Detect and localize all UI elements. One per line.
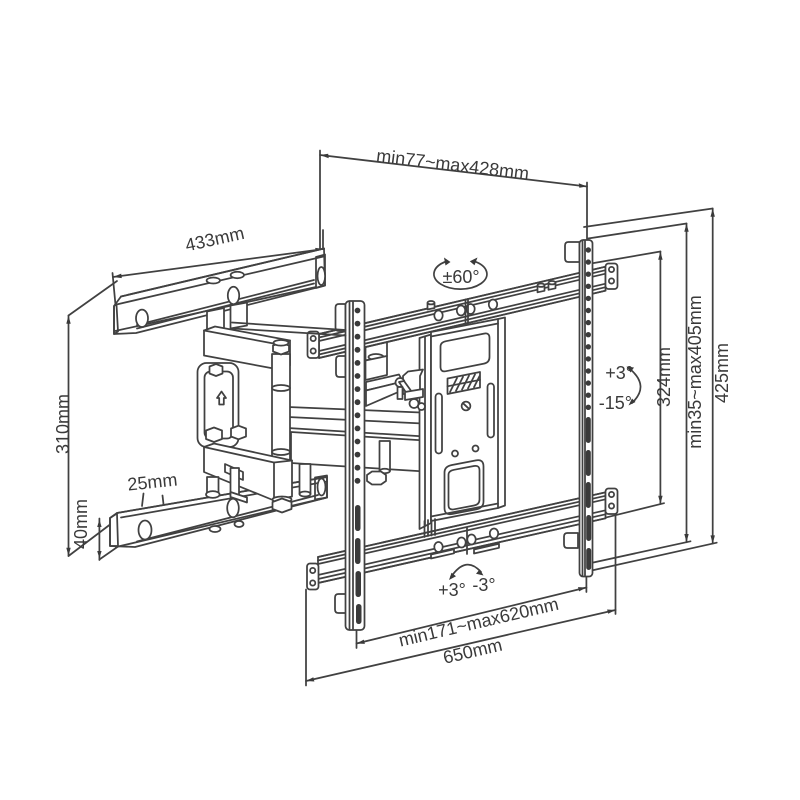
- svg-text:650mm: 650mm: [441, 635, 504, 668]
- svg-text:±60°: ±60°: [442, 267, 479, 287]
- svg-text:+3°: +3°: [438, 580, 466, 600]
- svg-text:+3°: +3°: [605, 363, 633, 383]
- svg-text:433mm: 433mm: [183, 223, 246, 256]
- svg-text:-15°: -15°: [599, 393, 632, 413]
- svg-text:-3°: -3°: [472, 575, 495, 595]
- svg-text:min77~max428mm: min77~max428mm: [375, 146, 530, 184]
- svg-text:40mm: 40mm: [71, 499, 91, 549]
- svg-text:min35~max405mm: min35~max405mm: [685, 295, 705, 449]
- svg-text:425mm: 425mm: [712, 343, 732, 403]
- svg-text:310mm: 310mm: [53, 394, 73, 454]
- svg-text:324mm: 324mm: [654, 347, 674, 407]
- svg-text:25mm: 25mm: [126, 469, 178, 494]
